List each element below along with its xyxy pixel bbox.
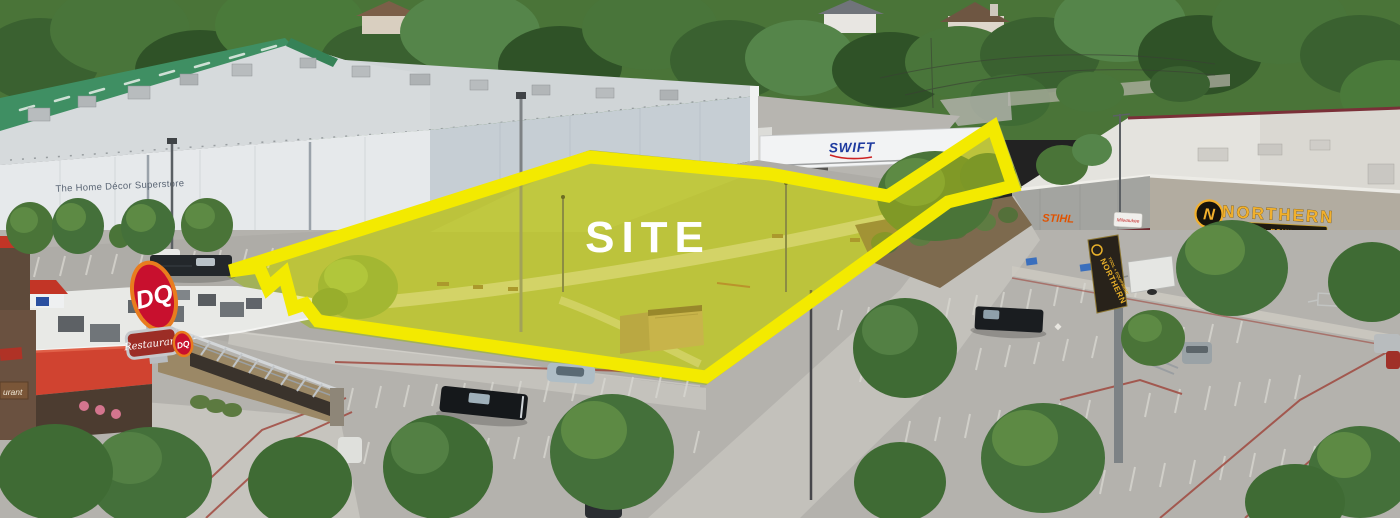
site-label: SITE bbox=[585, 213, 711, 262]
red-car-edge bbox=[1386, 351, 1400, 369]
silver-pickup-edge bbox=[1374, 334, 1400, 353]
black-pickup-right bbox=[970, 306, 1047, 340]
stihl-sign: STIHL bbox=[1042, 212, 1074, 225]
northern-logo-letter: N bbox=[1203, 206, 1216, 224]
milwaukee-sign: Milwaukee bbox=[1114, 212, 1143, 227]
silver-suv bbox=[1182, 342, 1212, 364]
aerial-site-photo: The Home Décor Superstore SWIFT bbox=[0, 0, 1400, 518]
restaurant-partial-sign: urant bbox=[0, 382, 28, 399]
milwaukee-sign-text: Milwaukee bbox=[1117, 217, 1140, 224]
swift-logo: SWIFT bbox=[829, 140, 876, 156]
restaurant-partial-text: urant bbox=[3, 387, 23, 397]
